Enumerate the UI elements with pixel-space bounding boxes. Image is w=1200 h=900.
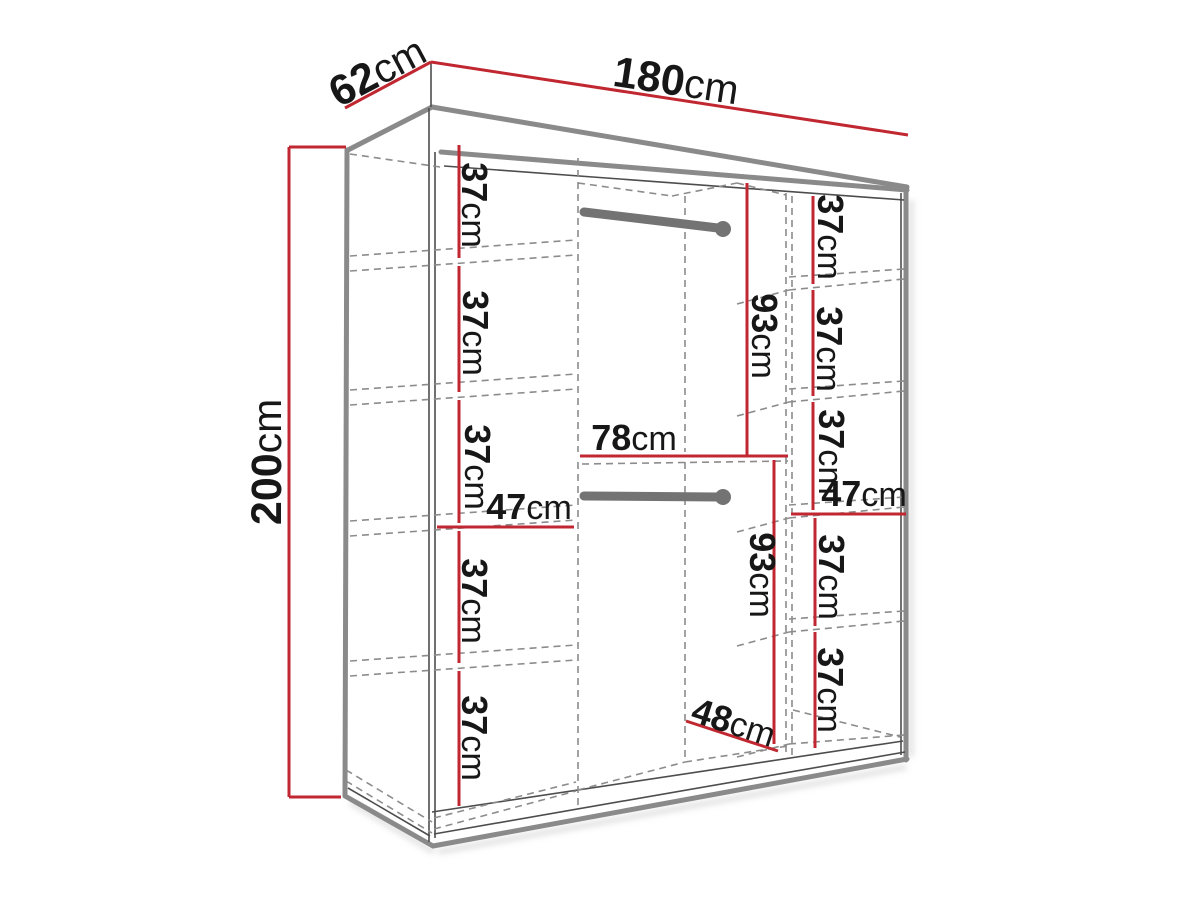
middle-upper-height-label: 93cm xyxy=(744,293,785,379)
left-shelf-gap-label-5: 37cm xyxy=(454,695,495,781)
dimension-labels: 62cm 180cm 200cm 37cm 37cm 37cm 37cm 37c… xyxy=(243,26,907,780)
middle-lower-height-label: 93cm xyxy=(742,532,783,618)
middle-depth-label: 48cm xyxy=(687,689,781,754)
dim-label-depth: 62cm xyxy=(321,26,434,116)
diagram-canvas: 62cm 180cm 200cm 37cm 37cm 37cm 37cm 37c… xyxy=(0,0,1200,900)
left-column-width-label: 47cm xyxy=(486,486,572,527)
dim-label-width: 180cm xyxy=(610,48,742,114)
left-shelf-gap-label-1: 37cm xyxy=(454,162,495,248)
left-shelf-gap-label-4: 37cm xyxy=(454,558,495,644)
rod-end-knob xyxy=(715,489,731,505)
left-shelf-gap-label-2: 37cm xyxy=(455,290,496,376)
dim-label-height: 200cm xyxy=(243,399,291,525)
rod-end-knob xyxy=(715,221,731,237)
wardrobe-dimension-diagram: 62cm 180cm 200cm 37cm 37cm 37cm 37cm 37c… xyxy=(0,0,1200,900)
right-shelf-gap-label-5: 37cm xyxy=(810,647,851,733)
right-shelf-gap-label-2: 37cm xyxy=(809,306,850,392)
right-shelf-gap-label-1: 37cm xyxy=(810,194,851,280)
hanging-rod-lower xyxy=(584,489,731,505)
hanging-rod-upper xyxy=(584,212,731,237)
right-column-width-label: 47cm xyxy=(821,473,907,514)
wardrobe-shadow xyxy=(350,200,911,852)
middle-width-label: 78cm xyxy=(591,417,677,458)
right-shelf-gap-label-4: 37cm xyxy=(811,534,852,620)
